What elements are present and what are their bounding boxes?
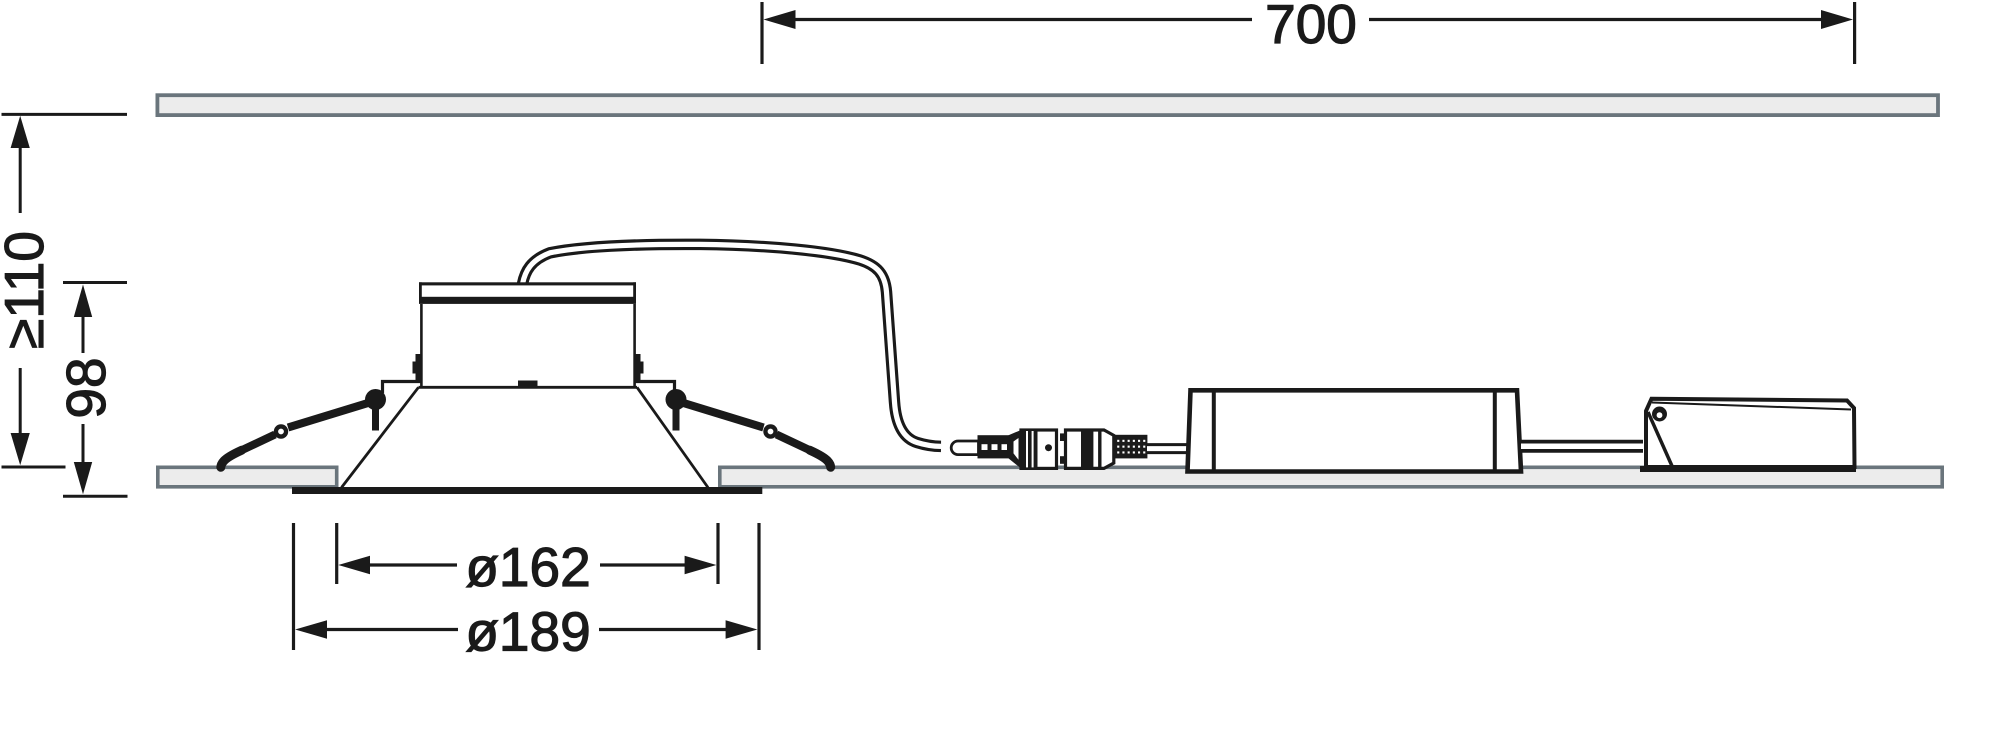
svg-text:ø189: ø189	[465, 601, 590, 663]
svg-text:ø162: ø162	[465, 536, 590, 598]
svg-text:700: 700	[1265, 0, 1357, 55]
svg-text:98: 98	[55, 357, 117, 418]
svg-text:≥110: ≥110	[0, 231, 55, 349]
